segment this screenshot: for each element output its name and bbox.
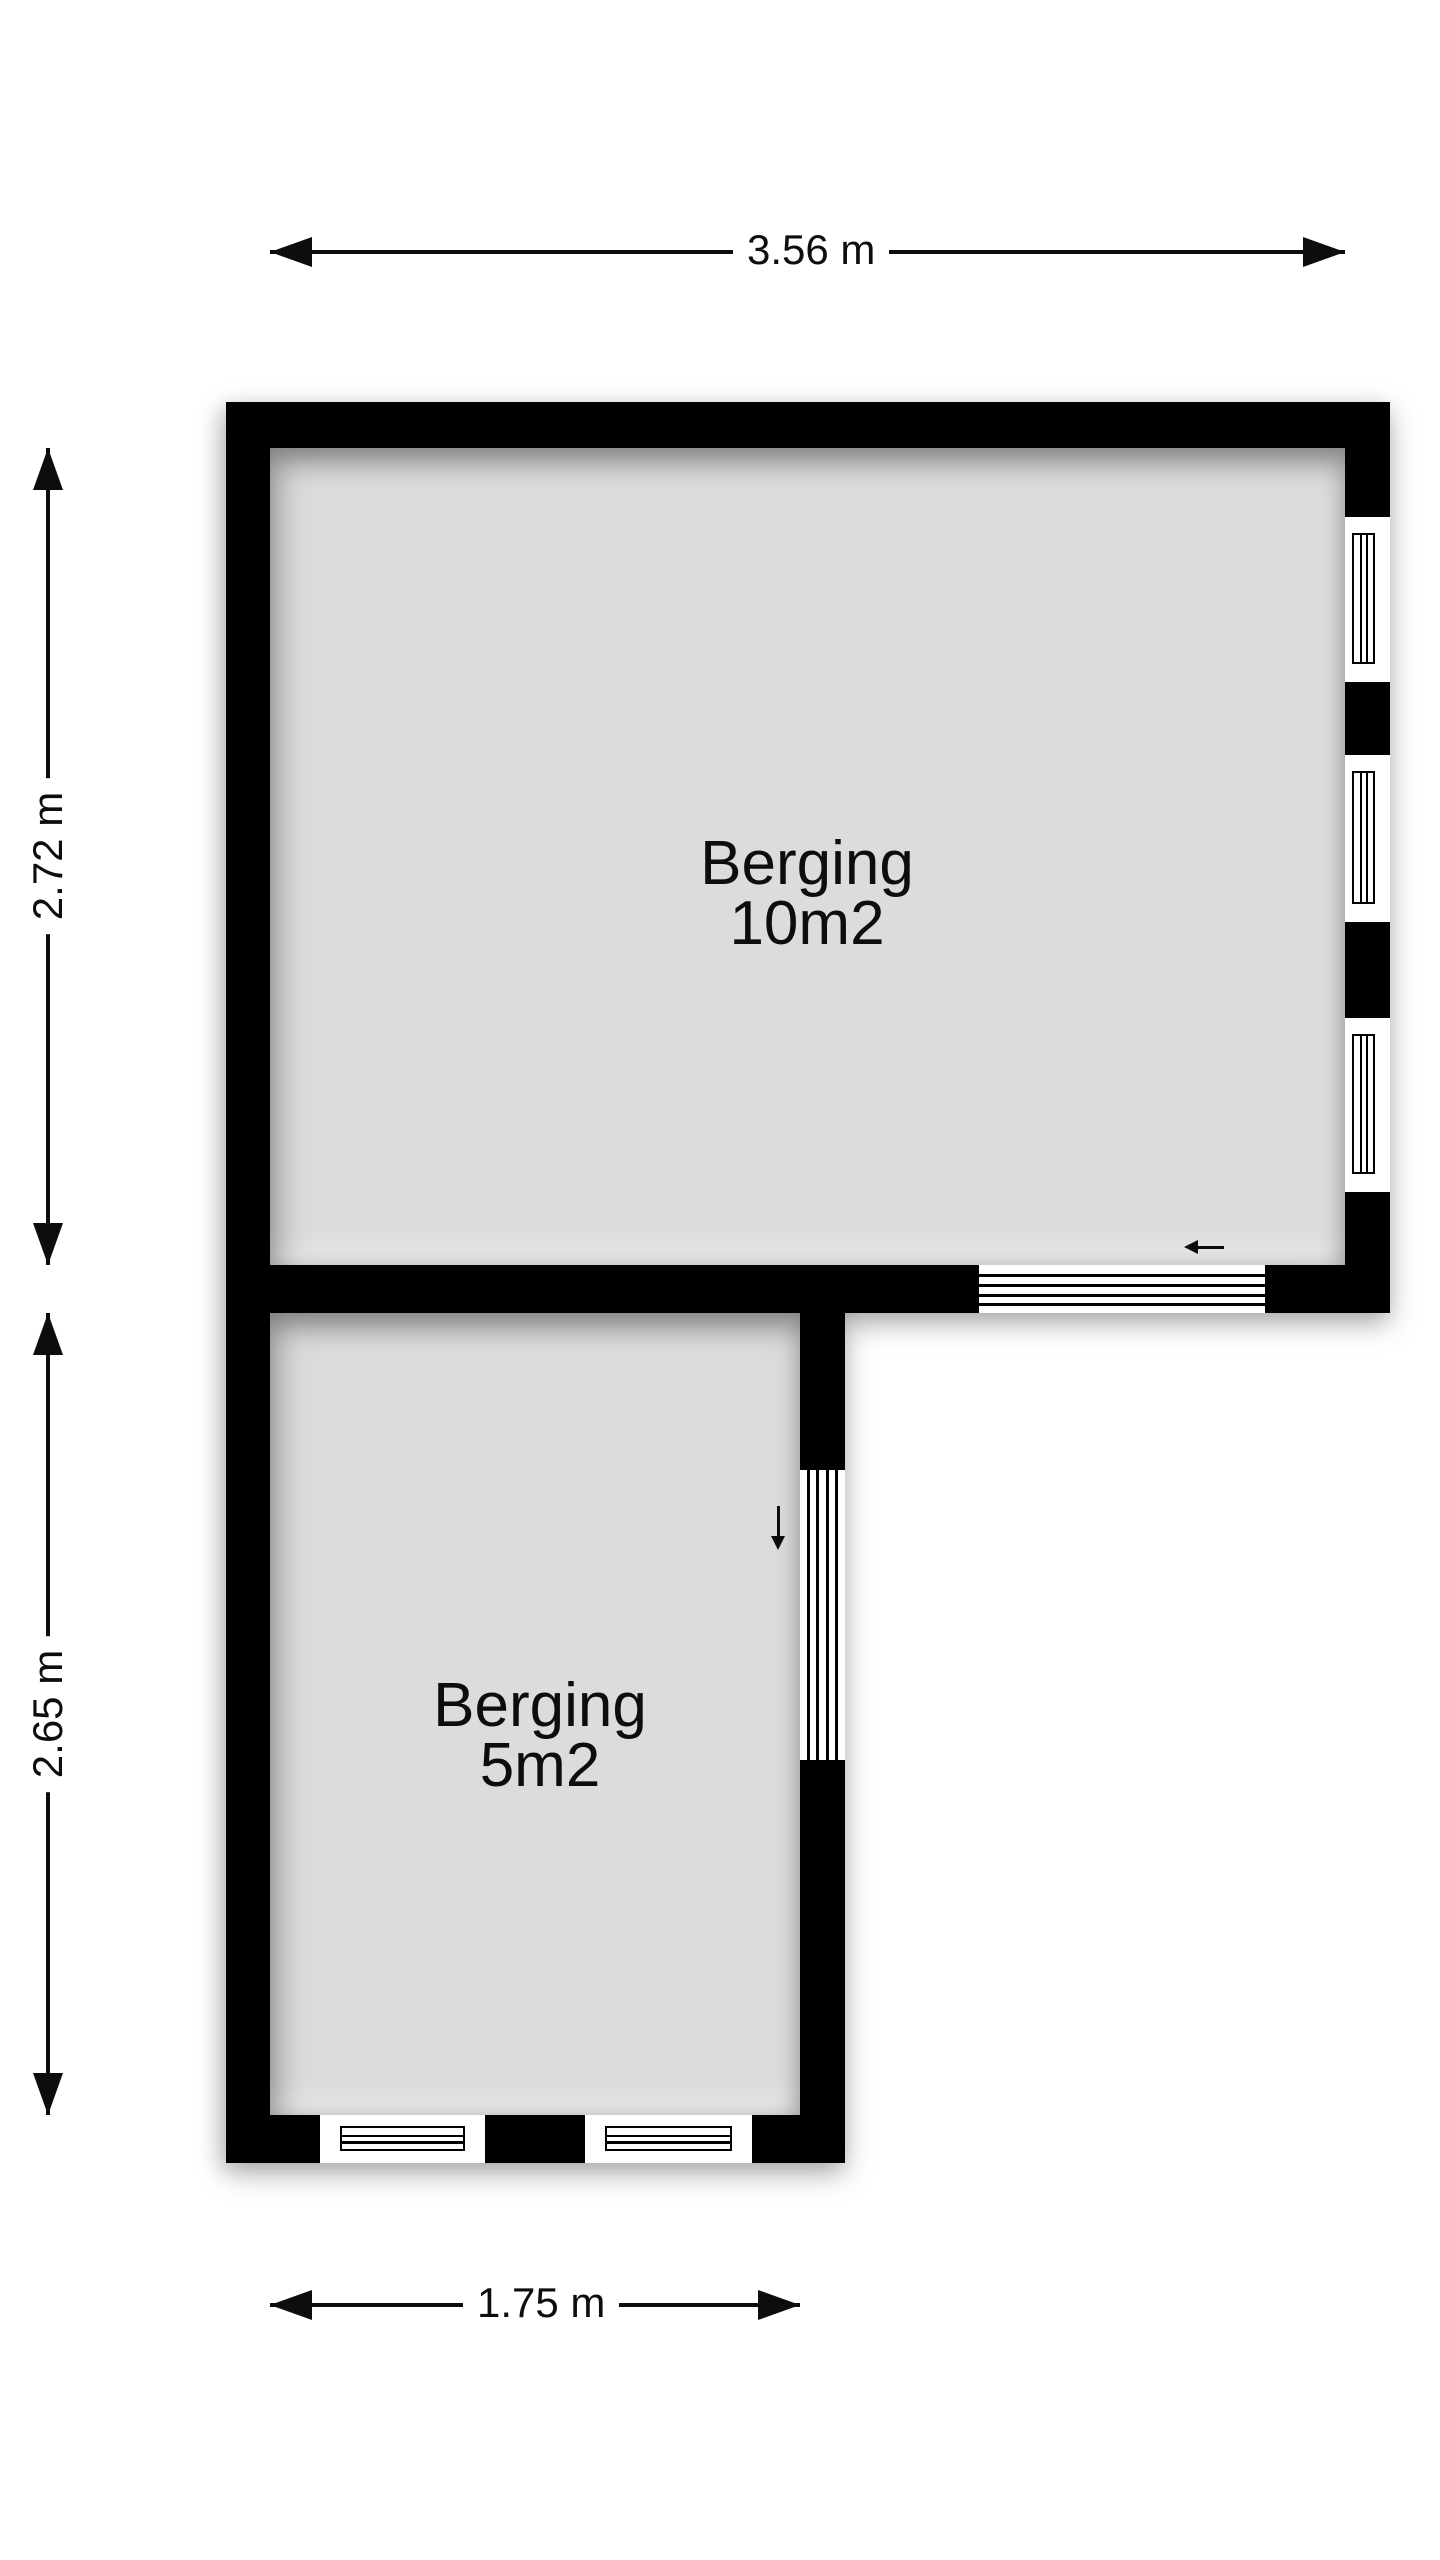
door-symbol <box>800 1470 845 1760</box>
wall-segment <box>226 2115 320 2163</box>
glazing-line <box>1360 1036 1363 1172</box>
glazing-line <box>1360 773 1363 902</box>
glazing-line <box>1360 535 1363 662</box>
door-symbol <box>979 1265 1265 1313</box>
door-slat-line <box>979 1303 1265 1306</box>
window-symbol <box>1345 1018 1390 1192</box>
window-glazing <box>340 2126 465 2151</box>
glazing-line <box>1366 773 1369 902</box>
door-slat-line <box>816 1470 819 1760</box>
door-slat-line <box>826 1470 829 1760</box>
wall-segment <box>1345 402 1390 517</box>
door-slat-line <box>979 1284 1265 1287</box>
wall-segment <box>752 2115 845 2163</box>
window-symbol <box>320 2115 485 2163</box>
window-glazing <box>1352 1034 1375 1174</box>
door-slat-line <box>807 1470 810 1760</box>
window-glazing <box>1352 533 1375 664</box>
wall-segment <box>1345 922 1390 1018</box>
wall-segment <box>1345 682 1390 755</box>
wall-segment <box>226 1265 979 1313</box>
window-glazing <box>605 2126 732 2151</box>
wall-segment <box>800 1760 845 2163</box>
wall-segment <box>226 402 1390 448</box>
glazing-line <box>607 2141 730 2144</box>
glazing-line <box>1366 1036 1369 1172</box>
window-symbol <box>585 2115 752 2163</box>
window-symbol <box>1345 517 1390 682</box>
door-slat-line <box>979 1294 1265 1297</box>
glazing-line <box>342 2141 463 2144</box>
door-slat-line <box>979 1274 1265 1277</box>
glazing-line <box>1366 535 1369 662</box>
building <box>0 0 1440 2560</box>
glazing-line <box>342 2135 463 2138</box>
window-glazing <box>1352 771 1375 904</box>
glazing-line <box>607 2135 730 2138</box>
wall-segment <box>1265 1265 1390 1313</box>
wall-segment <box>800 1313 845 1470</box>
door-slat-line <box>835 1470 838 1760</box>
wall-segment <box>485 2115 585 2163</box>
floorplan-canvas: 3.56 m 2.72 m 2.65 m 1.75 m Berging 10m2… <box>0 0 1440 2560</box>
window-symbol <box>1345 755 1390 922</box>
